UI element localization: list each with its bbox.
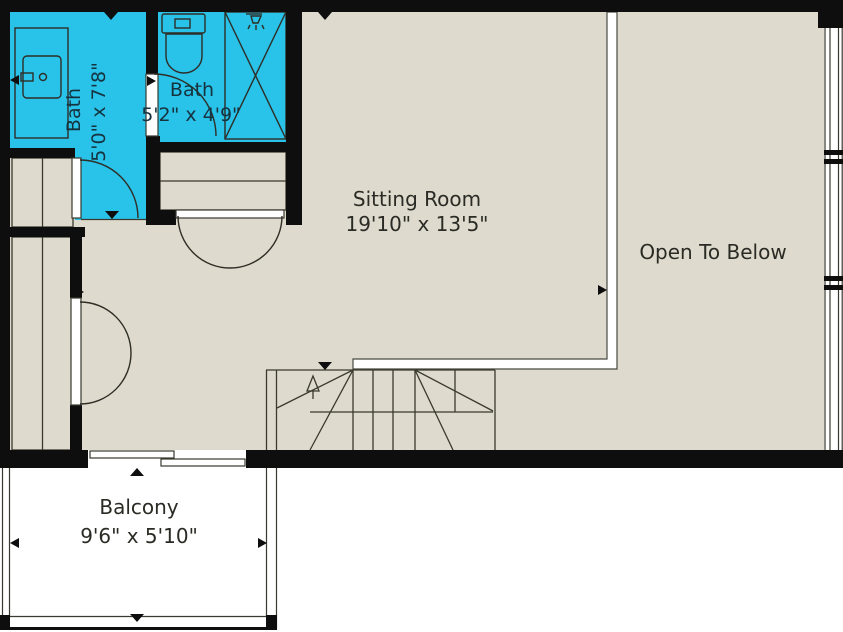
bath2-label: Bath (170, 79, 214, 101)
window (824, 28, 843, 450)
balcony-dimensions: 9'6" x 5'10" (80, 524, 198, 548)
bath1-label: Bath (63, 88, 85, 132)
balcony-label: Balcony (99, 495, 178, 519)
wall-closet-corner (146, 210, 176, 225)
wall-bath2-south (146, 142, 302, 152)
sitting-room-label: Sitting Room (353, 187, 481, 211)
sliding-door-panel (161, 459, 245, 466)
balcony-edge (0, 627, 277, 630)
window-mullion (824, 159, 843, 164)
wall-bath-divider-upper (146, 10, 158, 74)
bath1-door-leaf (72, 158, 81, 218)
floor-plan-canvas: Bath 5'0" x 7'8" Bath 5'2" x 4'9" Sittin… (0, 0, 843, 632)
balcony-area (0, 468, 278, 632)
left-double-door-frame (71, 298, 81, 405)
bath1-dimensions: 5'0" x 7'8" (88, 62, 110, 162)
wall-bath2-east (286, 10, 302, 225)
sliding-door-panel (90, 451, 174, 458)
wall-stub-lower (70, 405, 82, 450)
window-mullion (824, 285, 843, 290)
bath2-dimensions: 5'2" x 4'9" (141, 104, 241, 126)
sitting-room-dimensions: 19'10" x 13'5" (345, 212, 488, 236)
balcony-deck (0, 468, 278, 632)
window-mullion (824, 150, 843, 155)
balcony-post (0, 615, 10, 629)
open-to-below-label: Open To Below (639, 240, 786, 264)
balcony-post (266, 615, 277, 629)
wall-north (0, 0, 843, 12)
window-mullion (824, 276, 843, 281)
floor-plan: Bath 5'0" x 7'8" Bath 5'2" x 4'9" Sittin… (0, 0, 843, 632)
closet-double-door-frame (176, 210, 284, 218)
sliding-door (88, 450, 246, 468)
wall-northeast-corner (818, 0, 843, 28)
wall-below-closet (0, 227, 85, 237)
window-glazing (824, 28, 843, 450)
wall-bath1-south (0, 148, 75, 158)
